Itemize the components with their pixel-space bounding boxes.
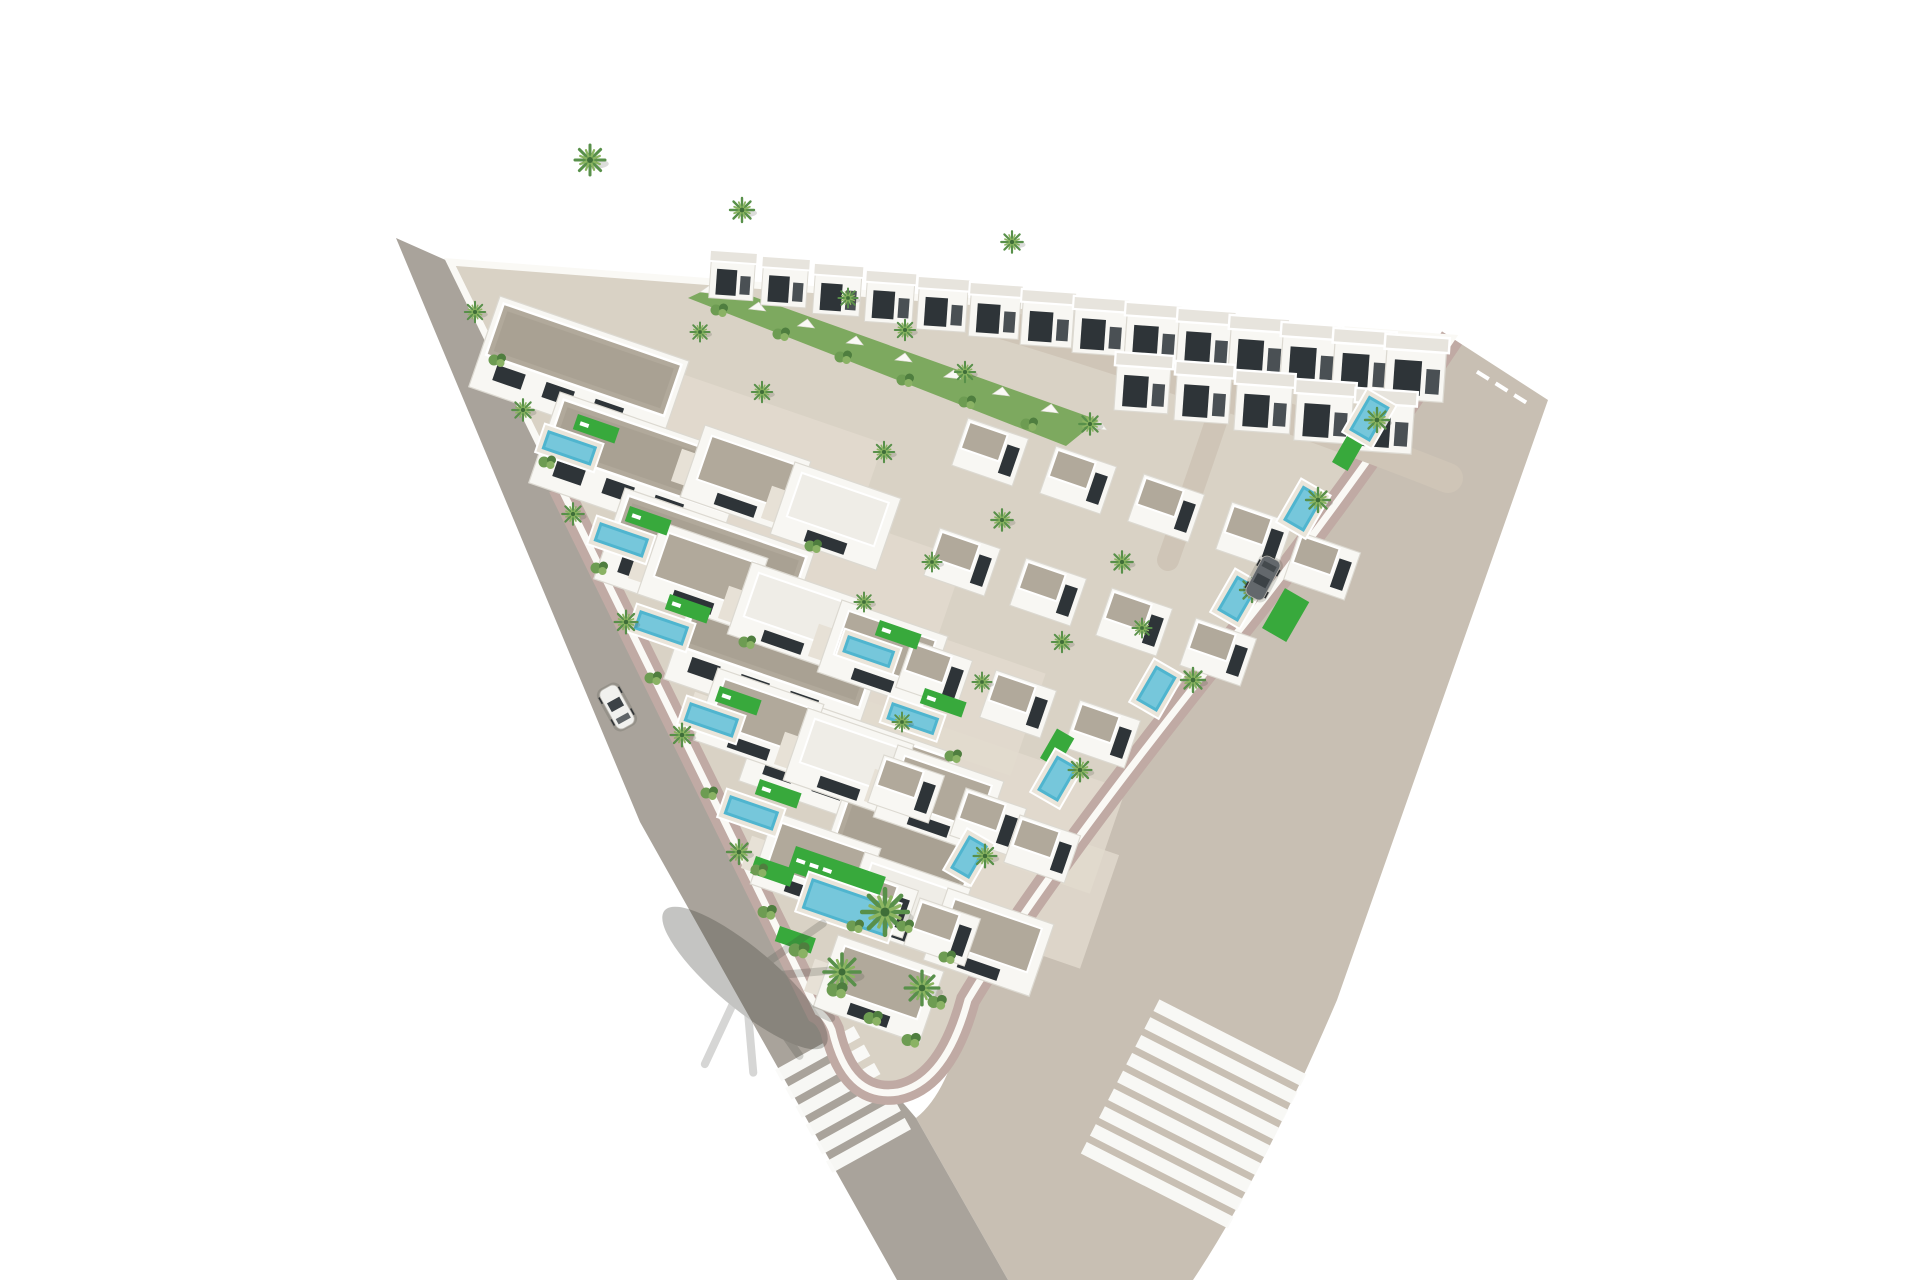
shrub-leaf: [843, 356, 851, 364]
villa-glazing-side: [1272, 403, 1286, 427]
palm-crown: [1375, 418, 1380, 423]
shrub-leaf: [747, 641, 755, 649]
villa-roof: [1073, 296, 1130, 313]
villa-glazing: [1236, 339, 1264, 373]
palm-crown: [862, 600, 866, 604]
shrub-leaf: [953, 755, 961, 763]
scene-canvas: [0, 0, 1920, 1280]
palm-crown: [1140, 626, 1144, 630]
shrub-leaf: [855, 925, 863, 933]
villa-glazing-side: [1212, 393, 1226, 417]
villa-glazing: [872, 290, 896, 319]
palm-crown: [846, 296, 850, 300]
villa-roof: [709, 250, 757, 264]
villa-glazing-side: [1319, 356, 1334, 381]
shrub-leaf: [759, 869, 767, 877]
villa-roof: [1177, 308, 1237, 326]
palm-crown: [1191, 678, 1196, 683]
villa-glazing: [715, 269, 737, 296]
palm-crown: [571, 512, 575, 516]
villa-glazing-side: [739, 276, 750, 295]
shrub-leaf: [547, 461, 555, 469]
villa-glazing-side: [1394, 422, 1409, 447]
villa-roof: [1115, 352, 1174, 369]
villa-glazing: [924, 297, 948, 327]
villa-roof: [1125, 302, 1184, 319]
palm-crown: [1010, 240, 1014, 244]
palm-crown: [880, 907, 889, 916]
villa-glazing: [767, 275, 789, 303]
villa-roof: [761, 256, 811, 271]
palm-crown: [680, 733, 685, 738]
villa-glazing: [1028, 311, 1054, 343]
palm-crown: [900, 720, 904, 724]
villa-glazing: [1182, 384, 1209, 418]
palm-crown: [903, 328, 907, 332]
villa-glazing-side: [1161, 334, 1175, 357]
palm-crown: [882, 450, 886, 454]
palm-crown: [521, 408, 525, 412]
two-story-villa: [966, 282, 1024, 340]
villa-roof: [917, 276, 971, 292]
two-story-villa: [1070, 296, 1130, 356]
villa-roof: [865, 270, 917, 285]
villa-roof: [813, 263, 864, 278]
palm-crown: [980, 680, 984, 684]
palm-crown: [587, 157, 593, 163]
palm-crown: [963, 370, 967, 374]
two-story-villa: [707, 250, 758, 301]
shrub-leaf: [766, 911, 775, 920]
palm-crown: [1088, 422, 1092, 426]
shrub-leaf: [653, 677, 661, 685]
two-story-villa: [1112, 352, 1174, 414]
villa-glazing-side: [1151, 384, 1165, 407]
villa-roof: [1235, 370, 1296, 388]
shrub-leaf: [798, 949, 808, 959]
villa-glazing-side: [897, 298, 909, 319]
villa-glazing-side: [792, 283, 804, 302]
shrub-leaf: [719, 309, 727, 317]
shrub-leaf: [836, 989, 846, 999]
palm-crown: [1316, 498, 1321, 503]
villa-glazing-side: [1056, 319, 1069, 341]
villa-glazing: [1122, 375, 1149, 408]
villa-glazing-side: [1003, 311, 1016, 333]
palm-crown: [698, 330, 702, 334]
villa-roof: [1021, 289, 1077, 306]
villa-glazing-side: [1267, 348, 1281, 372]
two-story-villa: [862, 270, 917, 325]
villa-glazing-side: [950, 305, 963, 326]
villa-glazing: [1242, 394, 1270, 428]
shrub-leaf: [910, 1039, 919, 1048]
palm-crown: [1000, 518, 1004, 522]
shrub-leaf: [947, 956, 955, 964]
shrub-leaf: [599, 567, 607, 575]
villa-glazing-side: [1108, 327, 1121, 350]
two-story-villa: [1172, 361, 1235, 424]
palm-crown: [473, 310, 477, 314]
villa-glazing: [1080, 318, 1106, 350]
aerial-render-image: [0, 0, 1920, 1280]
two-story-villa: [1231, 370, 1295, 434]
two-story-villa: [811, 263, 865, 317]
two-story-villa: [759, 256, 811, 308]
palm-crown: [624, 620, 629, 625]
shrub-leaf: [872, 1017, 881, 1026]
villa-glazing: [976, 303, 1001, 334]
shrub-leaf: [1029, 423, 1037, 431]
palm-crown: [740, 208, 745, 213]
villa-glazing: [1184, 331, 1211, 365]
palm-crown: [930, 560, 934, 564]
villa-roof: [969, 282, 1024, 298]
villa-glazing: [1302, 403, 1330, 438]
villa-glazing-side: [1214, 340, 1228, 364]
shrub-leaf: [781, 333, 789, 341]
villa-glazing-side: [1425, 369, 1440, 395]
villa-roof: [1384, 334, 1449, 353]
villa-roof: [1175, 361, 1235, 379]
shrub-leaf: [936, 1001, 945, 1010]
shrub-leaf: [497, 359, 505, 367]
palm-crown: [838, 968, 845, 975]
villa-roof: [1295, 379, 1357, 397]
two-story-villa: [914, 276, 971, 333]
palm-crown: [737, 850, 742, 855]
palm-crown: [919, 985, 926, 992]
shrub-leaf: [905, 379, 913, 387]
shrub-leaf: [905, 925, 913, 933]
two-story-villa: [1018, 289, 1077, 348]
palm-crown: [1120, 560, 1124, 564]
shrub-leaf: [709, 792, 717, 800]
shrub-leaf: [967, 401, 975, 409]
palm-crown: [760, 390, 764, 394]
palm-crown: [983, 854, 988, 859]
shrub-leaf: [813, 545, 821, 553]
palm-crown: [1060, 640, 1064, 644]
palm-crown: [1078, 768, 1083, 773]
